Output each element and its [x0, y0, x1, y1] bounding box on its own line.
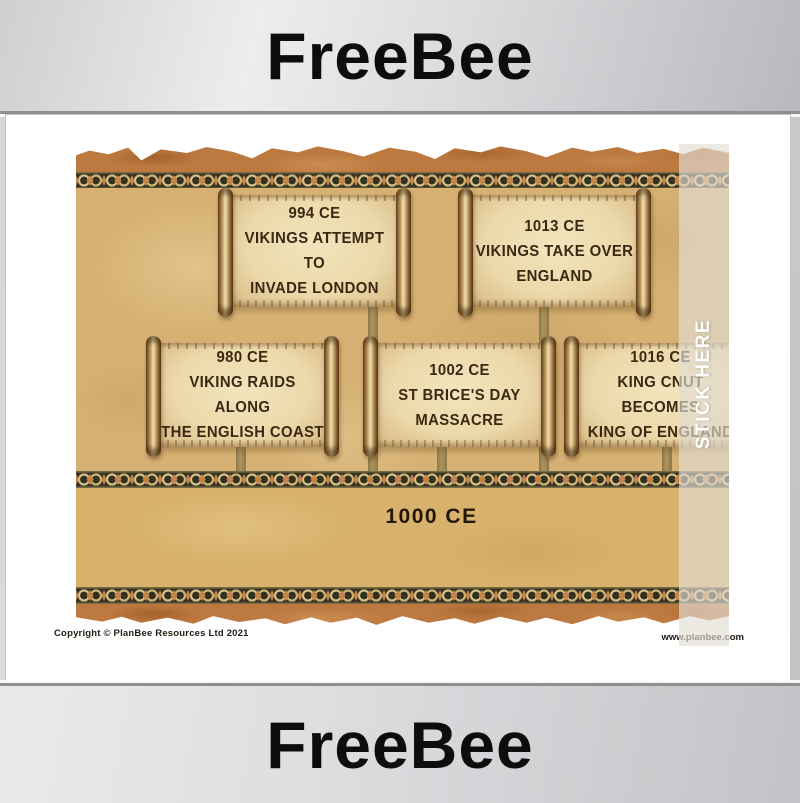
timeline-year-label: 1000 CE: [76, 488, 729, 529]
event-scroll-1002: 1002 CE ST BRICE'S DAY MASSACRE: [363, 338, 556, 453]
scroll-roller-right: [396, 188, 411, 317]
scroll-roller-left: [458, 188, 473, 317]
stick-here-overlay: STICK HERE: [679, 144, 729, 646]
content-page: 994 CE VIKINGS ATTEMPT TO INVADE LONDON …: [5, 114, 791, 682]
timeline-year-band: 1000 CE: [76, 488, 729, 587]
stick-here-label: STICK HERE: [693, 319, 715, 449]
event-line2: MASSACRE: [377, 408, 541, 433]
event-line2: ENGLAND: [472, 264, 636, 289]
event-scroll-980: 980 CE VIKING RAIDS ALONG THE ENGLISH CO…: [146, 338, 339, 453]
scroll-parchment: 1013 CE VIKINGS TAKE OVER ENGLAND: [469, 195, 640, 307]
torn-edge-top: [76, 144, 729, 174]
scroll-roller-left: [218, 188, 233, 317]
event-date: 980 CE: [160, 345, 324, 370]
scroll-roller-left: [564, 336, 579, 457]
event-date: 994 CE: [232, 201, 396, 226]
scroll-roller-right: [636, 188, 651, 317]
freebee-logo-top: FreeBee: [266, 18, 534, 94]
event-date: 1013 CE: [472, 214, 636, 239]
scroll-parchment: 980 CE VIKING RAIDS ALONG THE ENGLISH CO…: [157, 343, 328, 447]
event-line1: VIKING RAIDS ALONG: [160, 370, 324, 420]
celtic-border-middle: [76, 471, 729, 488]
event-line1: VIKINGS TAKE OVER: [472, 239, 636, 264]
scroll-parchment: 994 CE VIKINGS ATTEMPT TO INVADE LONDON: [229, 195, 400, 307]
event-scroll-1013: 1013 CE VIKINGS TAKE OVER ENGLAND: [458, 190, 651, 313]
scroll-roller-left: [363, 336, 378, 457]
celtic-border-top: [76, 172, 729, 189]
freebee-banner-top: FreeBee: [0, 0, 800, 114]
event-line2: THE ENGLISH COAST: [160, 420, 324, 445]
scroll-roller-left: [146, 336, 161, 457]
event-line2: INVADE LONDON: [232, 276, 396, 301]
scroll-roller-right: [541, 336, 556, 457]
event-line1: ST BRICE'S DAY: [377, 383, 541, 408]
scroll-parchment: 1002 CE ST BRICE'S DAY MASSACRE: [374, 343, 545, 447]
scroll-roller-right: [324, 336, 339, 457]
timeline-poster: 994 CE VIKINGS ATTEMPT TO INVADE LONDON …: [76, 144, 729, 626]
event-line1: VIKINGS ATTEMPT TO: [232, 226, 396, 276]
copyright-text: Copyright © PlanBee Resources Ltd 2021: [54, 628, 249, 639]
celtic-border-bottom: [76, 587, 729, 604]
event-scroll-994: 994 CE VIKINGS ATTEMPT TO INVADE LONDON: [218, 190, 411, 313]
event-date: 1002 CE: [377, 358, 541, 383]
freebee-banner-bottom: FreeBee: [0, 683, 800, 803]
torn-edge-bottom: [76, 604, 729, 626]
freebee-logo-bottom: FreeBee: [266, 707, 534, 783]
